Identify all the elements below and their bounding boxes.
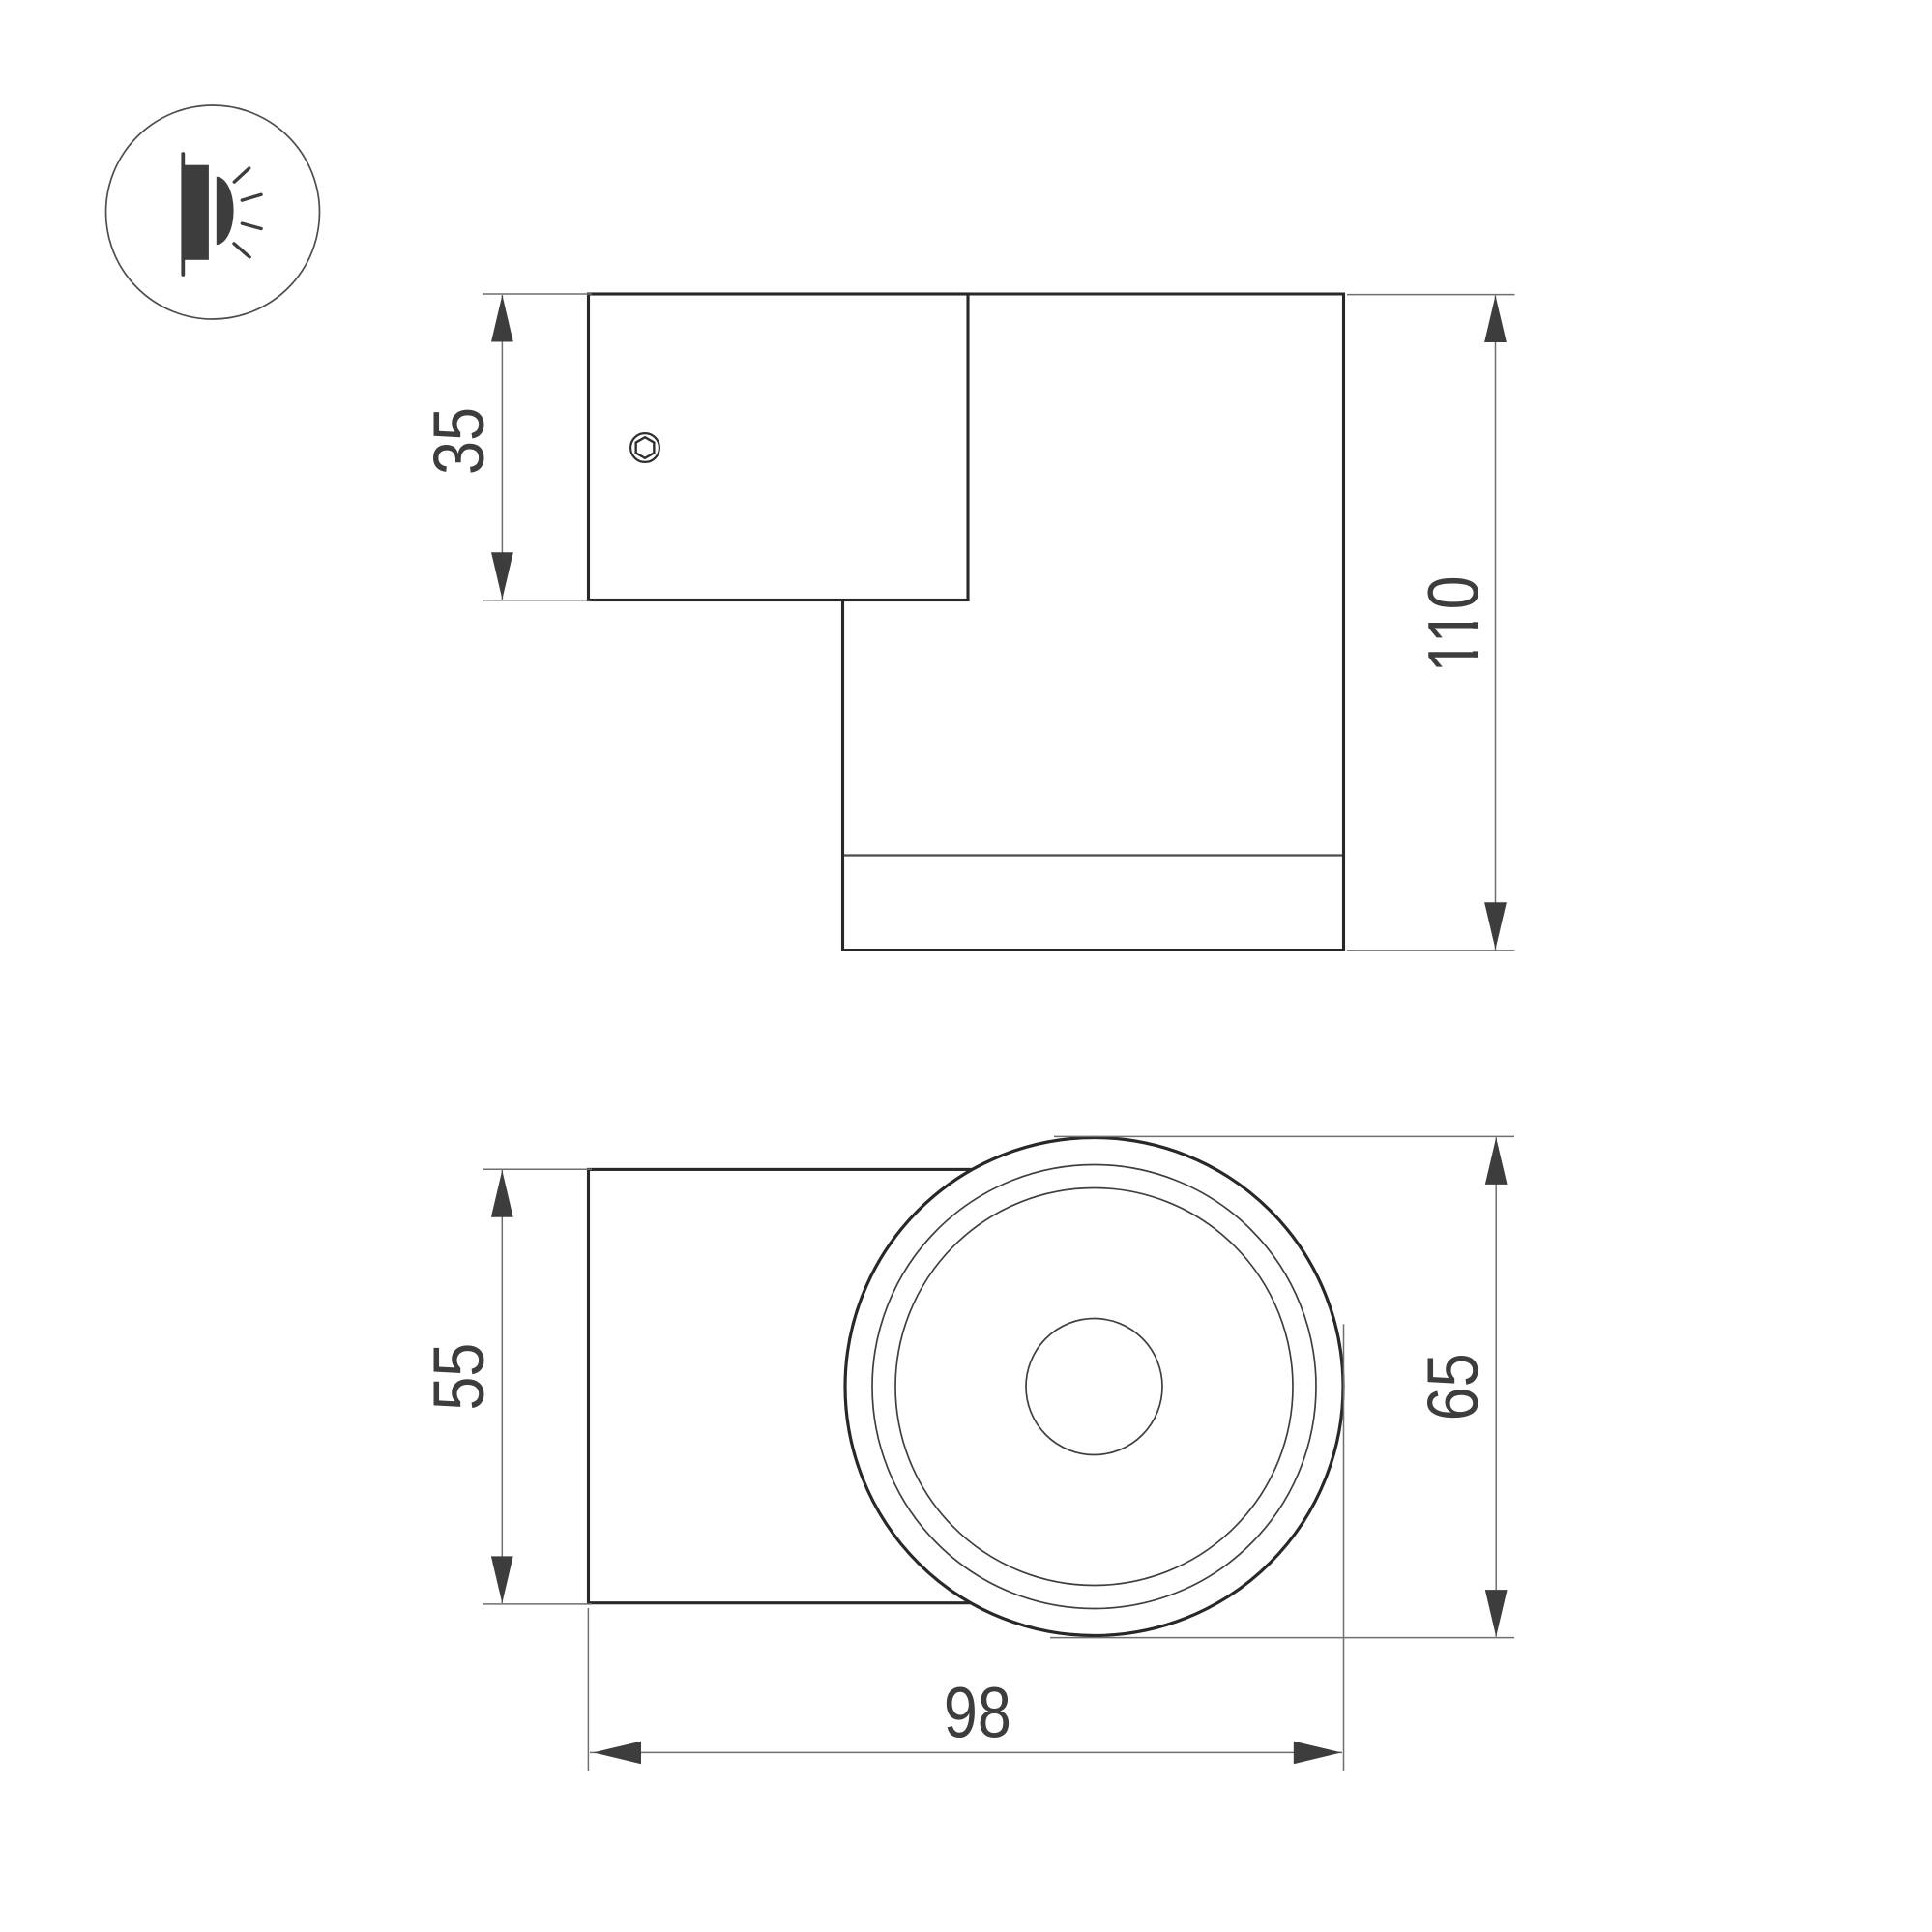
svg-text:98: 98 xyxy=(944,1672,1011,1752)
svg-text:65: 65 xyxy=(1413,1353,1493,1420)
svg-text:110: 110 xyxy=(1413,575,1493,672)
svg-text:55: 55 xyxy=(419,1343,499,1411)
svg-text:35: 35 xyxy=(419,407,499,475)
